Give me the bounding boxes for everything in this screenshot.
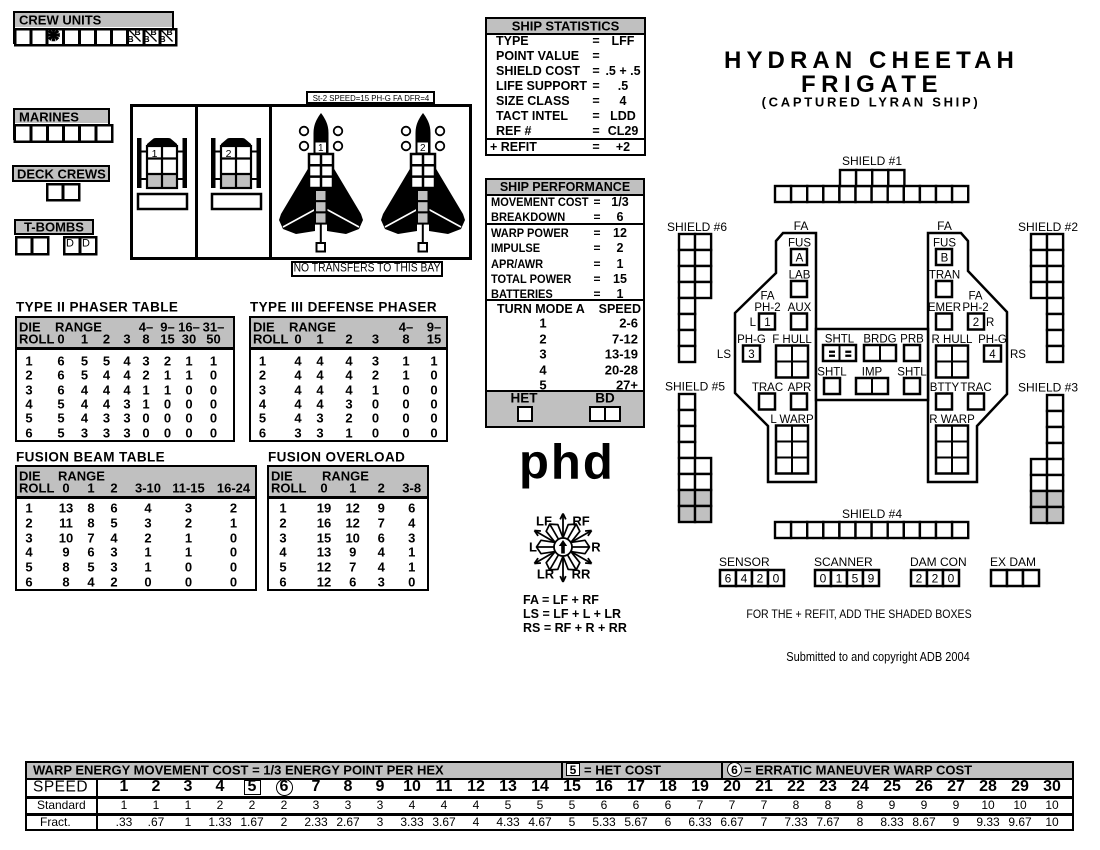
svg-text:BRDG: BRDG — [863, 334, 896, 346]
svg-text:TRAC: TRAC — [752, 382, 783, 394]
svg-text:SCANNER: SCANNER — [814, 555, 873, 569]
svg-text:DAM CON: DAM CON — [910, 555, 967, 569]
svg-text:LAB: LAB — [789, 270, 811, 282]
svg-text:B: B — [150, 27, 156, 37]
svg-text:A: A — [796, 253, 804, 265]
svg-text:F HULL: F HULL — [772, 334, 812, 346]
svg-text:SENSOR: SENSOR — [719, 555, 770, 569]
svg-text:LS: LS — [717, 349, 731, 361]
svg-text:B: B — [166, 27, 172, 37]
svg-text:B: B — [143, 34, 149, 44]
svg-text:PRB: PRB — [900, 334, 924, 346]
svg-text:0: 0 — [820, 572, 827, 586]
svg-text:L: L — [750, 317, 757, 329]
svg-text:SHIELD #6: SHIELD #6 — [667, 220, 727, 234]
svg-text:2: 2 — [757, 572, 764, 586]
svg-text:SHIELD #2: SHIELD #2 — [1018, 220, 1078, 234]
svg-text:SHTL: SHTL — [817, 367, 847, 379]
svg-text:6: 6 — [725, 572, 732, 586]
svg-text:R: R — [986, 317, 994, 329]
svg-text:FA: FA — [760, 291, 774, 303]
svg-text:L WARP: L WARP — [770, 414, 814, 426]
svg-text:SHIELD #4: SHIELD #4 — [842, 507, 902, 521]
svg-text:9: 9 — [868, 572, 875, 586]
svg-text:5: 5 — [852, 572, 859, 586]
svg-text:SHIELD #3: SHIELD #3 — [1018, 381, 1078, 395]
svg-text:TRAC: TRAC — [960, 382, 991, 394]
svg-text:0: 0 — [948, 572, 955, 586]
svg-text:FUS: FUS — [788, 238, 811, 250]
svg-text:2: 2 — [420, 143, 426, 154]
svg-text:EMER: EMER — [928, 302, 961, 314]
svg-text:B: B — [134, 27, 140, 37]
svg-text:IMP: IMP — [862, 367, 883, 379]
svg-text:PH-G: PH-G — [737, 334, 766, 346]
svg-text:RS: RS — [1010, 349, 1026, 361]
svg-text:SHTL: SHTL — [825, 334, 855, 346]
svg-text:PH-G: PH-G — [978, 334, 1007, 346]
svg-text:0: 0 — [773, 572, 780, 586]
svg-text:4: 4 — [989, 349, 996, 361]
svg-text:APR: APR — [788, 382, 812, 394]
svg-text:B: B — [127, 34, 133, 44]
svg-text:2: 2 — [932, 572, 939, 586]
svg-text:4: 4 — [741, 572, 748, 586]
svg-text:PH-2: PH-2 — [962, 302, 988, 314]
svg-text:1: 1 — [836, 572, 843, 586]
svg-text:3: 3 — [748, 349, 754, 361]
svg-text:FA: FA — [937, 219, 952, 233]
svg-text:SHIELD #1: SHIELD #1 — [842, 154, 902, 168]
svg-text:FUS: FUS — [933, 238, 956, 250]
svg-text:SHTL: SHTL — [897, 367, 927, 379]
svg-text:R HULL: R HULL — [932, 334, 974, 346]
svg-text:R WARP: R WARP — [929, 414, 975, 426]
svg-text:TRAN: TRAN — [929, 270, 960, 282]
svg-text:BTTY: BTTY — [930, 382, 960, 394]
svg-text:2: 2 — [916, 572, 923, 586]
svg-text:SHIELD #5: SHIELD #5 — [665, 380, 725, 394]
svg-text:1: 1 — [318, 143, 324, 154]
svg-text:FA: FA — [968, 291, 982, 303]
svg-text:EX DAM: EX DAM — [990, 555, 1036, 569]
svg-text:2: 2 — [226, 148, 232, 160]
svg-text:2: 2 — [973, 317, 979, 329]
svg-text:B: B — [159, 34, 165, 44]
svg-text:B: B — [941, 253, 949, 265]
svg-text:AUX: AUX — [788, 302, 812, 314]
svg-text:PH-2: PH-2 — [754, 302, 780, 314]
svg-text:FA: FA — [794, 219, 809, 233]
svg-text:1: 1 — [764, 317, 770, 329]
svg-text:1: 1 — [152, 148, 158, 160]
